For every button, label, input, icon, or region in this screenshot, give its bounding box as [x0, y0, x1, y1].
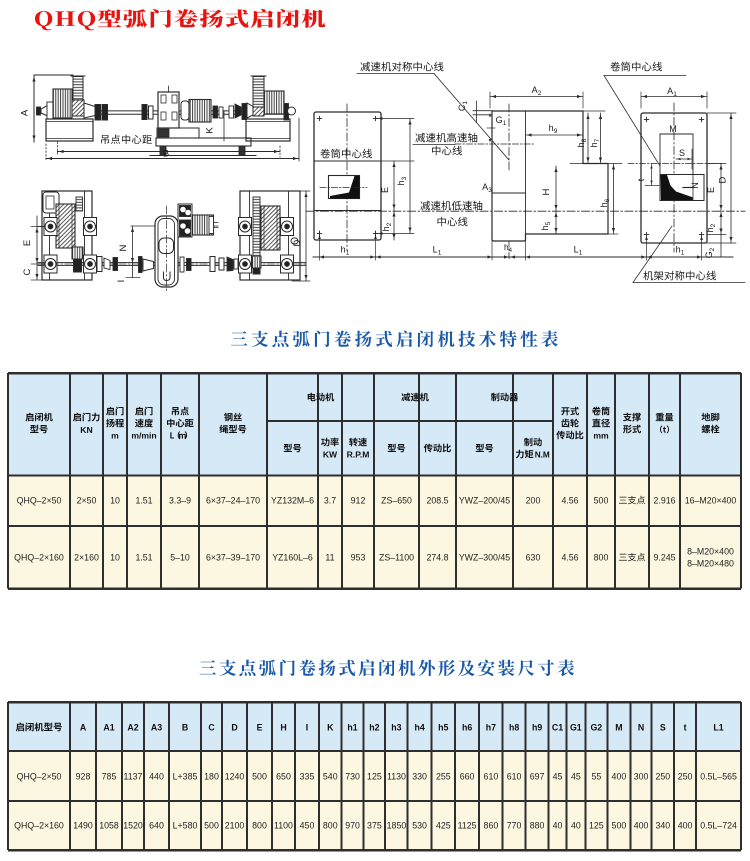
svg-text:1130: 1130 — [387, 772, 406, 782]
svg-text:N: N — [118, 244, 129, 251]
svg-text:425: 425 — [436, 821, 451, 831]
svg-text:1137: 1137 — [124, 772, 143, 782]
svg-text:m/min: m/min — [131, 431, 156, 441]
svg-text:860: 860 — [484, 821, 499, 831]
svg-text:N: N — [638, 723, 644, 733]
svg-text:L+580: L+580 — [173, 821, 198, 831]
svg-text:55: 55 — [591, 772, 601, 782]
svg-text:255: 255 — [436, 772, 451, 782]
svg-text:mm: mm — [593, 431, 609, 441]
svg-text:1850: 1850 — [387, 821, 407, 831]
svg-text:300: 300 — [634, 772, 649, 782]
svg-text:M: M — [615, 723, 622, 733]
svg-text:h7: h7 — [589, 138, 601, 147]
svg-text:h6: h6 — [599, 198, 611, 207]
svg-text:770: 770 — [507, 821, 522, 831]
svg-text:E: E — [380, 187, 390, 193]
svg-text:11: 11 — [325, 553, 334, 563]
svg-text:125: 125 — [589, 821, 604, 831]
svg-text:KN: KN — [80, 425, 92, 435]
svg-text:YWZ–200/45: YWZ–200/45 — [459, 496, 510, 506]
svg-text:500: 500 — [612, 821, 627, 831]
svg-text:h2: h2 — [369, 723, 379, 733]
svg-text:928: 928 — [76, 772, 91, 782]
svg-text:N.M: N.M — [535, 451, 550, 460]
svg-text:912: 912 — [351, 496, 366, 506]
svg-text:D: D — [231, 723, 237, 733]
svg-text:400: 400 — [634, 821, 649, 831]
svg-text:ZS–1100: ZS–1100 — [379, 553, 414, 563]
svg-text:A3: A3 — [482, 182, 492, 194]
svg-text:A: A — [80, 723, 87, 733]
svg-text:10: 10 — [110, 553, 120, 563]
svg-text:YZ160L–6: YZ160L–6 — [272, 553, 313, 563]
svg-text:H: H — [541, 188, 552, 195]
svg-text:QHQ–2×160: QHQ–2×160 — [14, 821, 64, 831]
svg-text:400: 400 — [612, 772, 627, 782]
svg-text:785: 785 — [102, 772, 117, 782]
svg-text:500: 500 — [252, 772, 267, 782]
svg-text:A: A — [20, 109, 31, 116]
svg-text:4.56: 4.56 — [561, 553, 578, 563]
svg-text:730: 730 — [345, 772, 360, 782]
svg-text:800: 800 — [594, 553, 609, 563]
svg-text:R.P.M: R.P.M — [347, 450, 370, 460]
svg-text:8–M20×400: 8–M20×400 — [687, 547, 734, 557]
svg-text:QHQ–2×50: QHQ–2×50 — [17, 772, 62, 782]
svg-text:h9: h9 — [549, 123, 558, 135]
svg-text:h4: h4 — [414, 723, 424, 733]
svg-text:697: 697 — [530, 772, 545, 782]
svg-text:640: 640 — [149, 821, 164, 831]
svg-text:375: 375 — [367, 821, 382, 831]
svg-text:h1: h1 — [341, 245, 350, 257]
svg-text:953: 953 — [351, 553, 366, 563]
svg-text:1.51: 1.51 — [135, 496, 152, 506]
svg-text:YZ132M–6: YZ132M–6 — [271, 496, 314, 506]
svg-text:KW: KW — [323, 450, 338, 460]
svg-text:h6: h6 — [462, 723, 472, 733]
svg-text:h1: h1 — [676, 245, 685, 257]
svg-text:800: 800 — [252, 821, 267, 831]
svg-text:I: I — [306, 723, 308, 733]
svg-text:630: 630 — [526, 553, 541, 563]
svg-text:QHQ–2×50: QHQ–2×50 — [17, 496, 62, 506]
svg-text:K: K — [205, 127, 216, 134]
svg-text:2.916: 2.916 — [653, 496, 675, 506]
svg-text:6×37–24–170: 6×37–24–170 — [206, 496, 260, 506]
svg-text:h1: h1 — [347, 723, 357, 733]
svg-text:208.5: 208.5 — [426, 496, 448, 506]
svg-text:335: 335 — [300, 772, 315, 782]
svg-text:h3: h3 — [396, 176, 408, 185]
svg-text:274.8: 274.8 — [426, 553, 448, 563]
svg-text:h8: h8 — [576, 138, 588, 147]
svg-text:0.5L–565: 0.5L–565 — [700, 772, 737, 782]
svg-text:1490: 1490 — [73, 821, 93, 831]
svg-text:H: H — [280, 723, 286, 733]
svg-text:800: 800 — [323, 821, 338, 831]
svg-text:1.51: 1.51 — [135, 553, 152, 563]
svg-text:880: 880 — [530, 821, 545, 831]
svg-text:660: 660 — [460, 772, 475, 782]
svg-text:ZS–650: ZS–650 — [381, 496, 412, 506]
svg-text:L1: L1 — [574, 245, 583, 257]
svg-text:A1: A1 — [103, 723, 114, 733]
svg-text:h8: h8 — [509, 723, 519, 733]
svg-text:40: 40 — [553, 821, 563, 831]
svg-text:h5: h5 — [540, 221, 552, 230]
svg-text:1125: 1125 — [458, 821, 477, 831]
svg-text:D: D — [292, 239, 303, 246]
svg-text:530: 530 — [412, 821, 427, 831]
svg-text:40: 40 — [571, 821, 581, 831]
svg-text:h4: h4 — [504, 242, 513, 254]
svg-text:QHQ–2×160: QHQ–2×160 — [14, 553, 64, 563]
svg-text:3.7: 3.7 — [324, 496, 336, 506]
svg-text:N: N — [690, 182, 700, 189]
svg-text:t: t — [684, 723, 687, 733]
svg-text:340: 340 — [655, 821, 670, 831]
svg-text:250: 250 — [678, 772, 693, 782]
svg-text:M: M — [669, 124, 677, 134]
svg-text:45: 45 — [553, 772, 563, 782]
svg-text:610: 610 — [507, 772, 522, 782]
svg-text:9.245: 9.245 — [653, 553, 675, 563]
svg-text:B: B — [182, 723, 188, 733]
svg-text:450: 450 — [300, 821, 315, 831]
svg-text:h5: h5 — [438, 723, 448, 733]
svg-text:400: 400 — [678, 821, 693, 831]
svg-text:250: 250 — [655, 772, 670, 782]
svg-text:125: 125 — [367, 772, 382, 782]
svg-text:4.56: 4.56 — [561, 496, 578, 506]
svg-text:C: C — [22, 268, 33, 275]
svg-text:A3: A3 — [151, 723, 162, 733]
svg-text:540: 540 — [323, 772, 338, 782]
svg-text:1240: 1240 — [225, 772, 245, 782]
svg-text:650: 650 — [276, 772, 291, 782]
svg-text:500: 500 — [204, 821, 219, 831]
svg-text:1058: 1058 — [99, 821, 119, 831]
svg-text:h7: h7 — [486, 723, 496, 733]
svg-text:D: D — [718, 176, 729, 183]
svg-text:330: 330 — [412, 772, 427, 782]
svg-text:h2: h2 — [381, 222, 393, 231]
svg-text:I: I — [116, 280, 127, 283]
svg-text:2×50: 2×50 — [77, 496, 97, 506]
svg-text:YWZ–300/45: YWZ–300/45 — [459, 553, 510, 563]
svg-text:45: 45 — [571, 772, 581, 782]
svg-text:m: m — [111, 431, 119, 441]
svg-text:200: 200 — [526, 496, 541, 506]
svg-text:180: 180 — [204, 772, 219, 782]
svg-text:A1: A1 — [667, 86, 677, 98]
svg-text:E: E — [257, 723, 263, 733]
svg-text:2×160: 2×160 — [74, 553, 99, 563]
svg-text:L1: L1 — [713, 723, 723, 733]
svg-text:L1: L1 — [433, 245, 442, 257]
svg-text:G2: G2 — [590, 723, 602, 733]
svg-text:10: 10 — [110, 496, 120, 506]
svg-text:S: S — [679, 148, 685, 158]
svg-text:E: E — [22, 240, 33, 246]
svg-text:2100: 2100 — [225, 821, 245, 831]
svg-text:B: B — [163, 149, 169, 160]
svg-text:h9: h9 — [532, 723, 542, 733]
svg-text:6×37–39–170: 6×37–39–170 — [206, 553, 260, 563]
svg-text:970: 970 — [345, 821, 360, 831]
svg-text:440: 440 — [149, 772, 164, 782]
svg-text:610: 610 — [484, 772, 499, 782]
svg-text:E: E — [706, 187, 716, 193]
svg-text:L+385: L+385 — [173, 772, 198, 782]
svg-text:K: K — [327, 723, 334, 733]
svg-text:G1: G1 — [496, 115, 507, 127]
svg-text:S: S — [660, 723, 666, 733]
svg-text:h3: h3 — [391, 723, 401, 733]
svg-text:3.3–9: 3.3–9 — [169, 496, 191, 506]
svg-text:A2: A2 — [127, 723, 138, 733]
svg-text:5–10: 5–10 — [170, 553, 190, 563]
svg-text:500: 500 — [594, 496, 609, 506]
svg-text:1100: 1100 — [274, 821, 293, 831]
svg-text:G1: G1 — [570, 723, 582, 733]
svg-text:8–M20×480: 8–M20×480 — [687, 559, 734, 569]
svg-text:1520: 1520 — [123, 821, 143, 831]
svg-text:C1: C1 — [552, 723, 563, 733]
svg-text:0.5L–724: 0.5L–724 — [700, 821, 737, 831]
svg-text:C: C — [208, 723, 215, 733]
svg-text:16–M20×400: 16–M20×400 — [685, 496, 737, 506]
svg-text:A2: A2 — [532, 85, 542, 97]
